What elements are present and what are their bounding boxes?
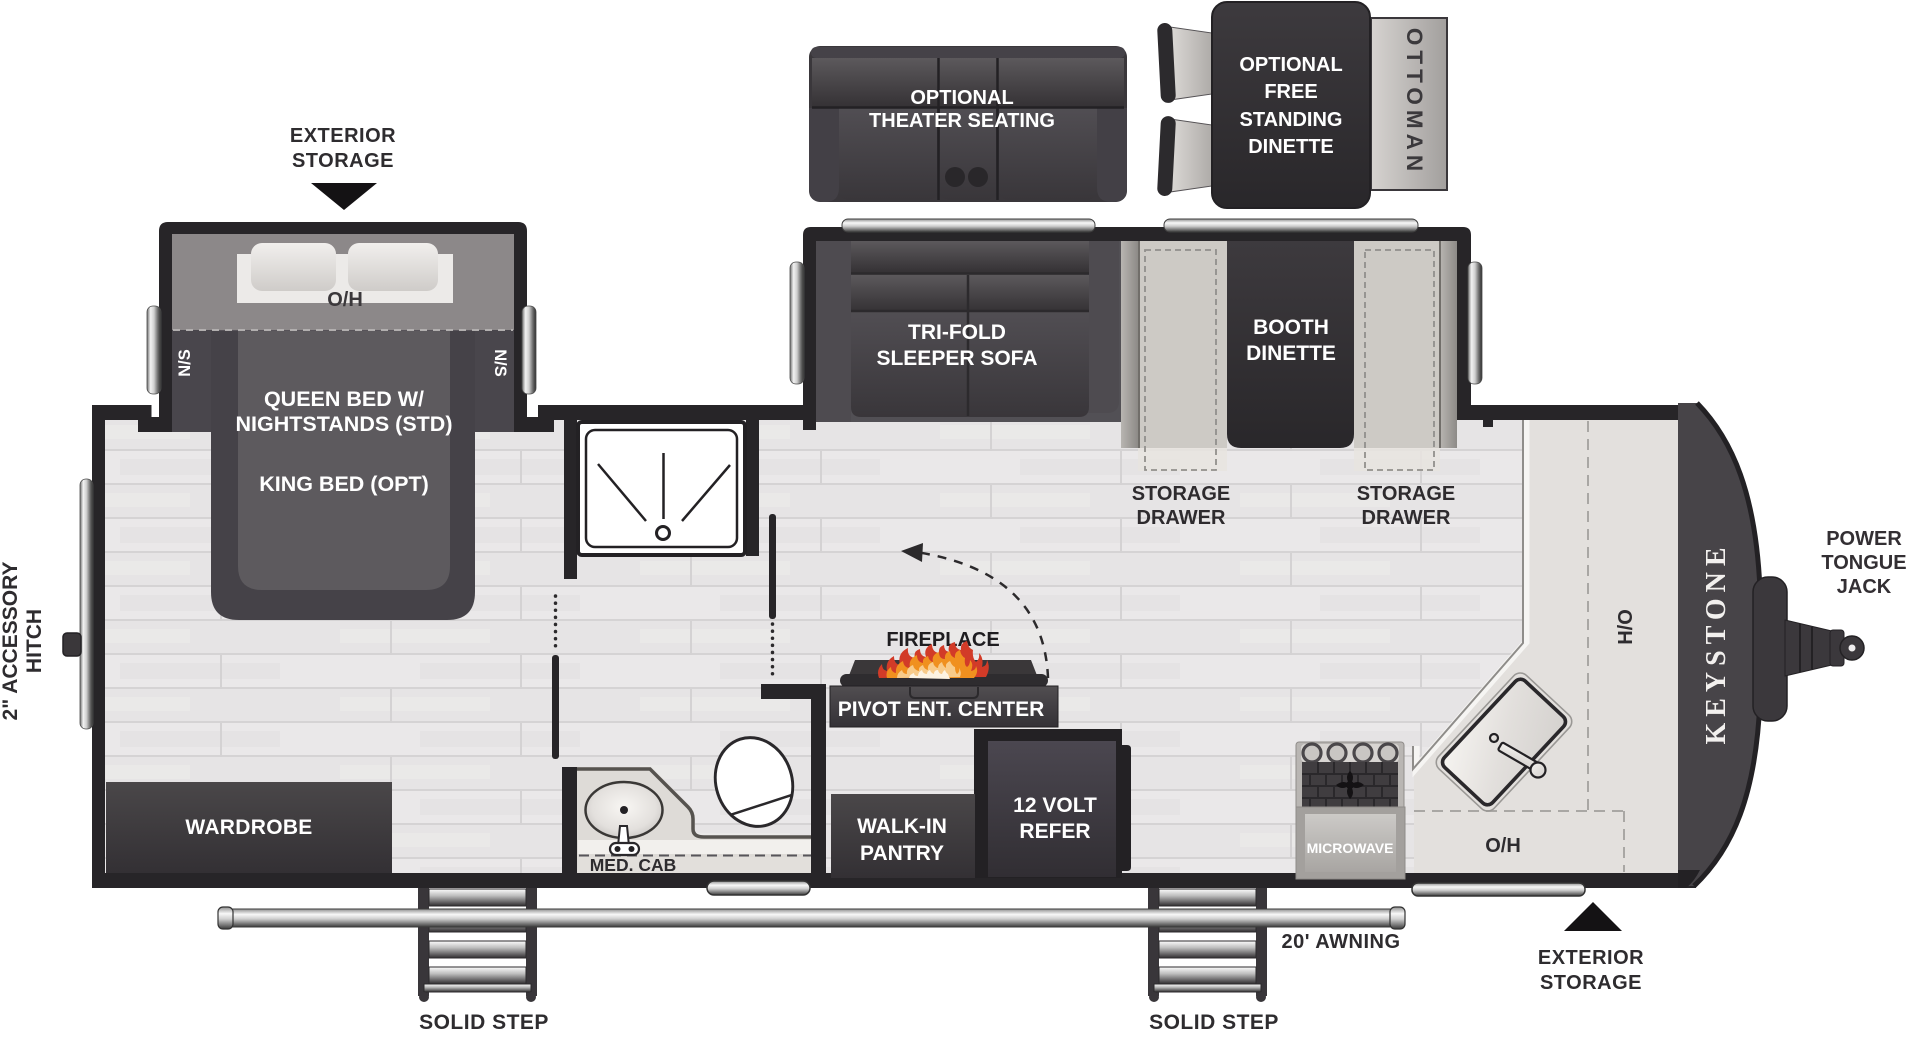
svg-text:JACK: JACK (1837, 576, 1892, 598)
svg-text:MED. CAB: MED. CAB (590, 855, 677, 875)
svg-text:WALK-IN: WALK-IN (857, 815, 947, 838)
svg-text:STORAGE: STORAGE (1132, 483, 1231, 505)
svg-text:OTTOMAN: OTTOMAN (1402, 28, 1427, 176)
svg-text:O/H: O/H (1485, 835, 1521, 857)
svg-text:PIVOT ENT. CENTER: PIVOT ENT. CENTER (838, 698, 1045, 721)
svg-text:2" ACCESSORY: 2" ACCESSORY (0, 562, 22, 721)
svg-text:TONGUE: TONGUE (1821, 552, 1906, 574)
svg-text:FREE: FREE (1264, 81, 1317, 103)
svg-text:O/H: O/H (327, 289, 363, 311)
svg-text:N/S: N/S (176, 349, 194, 377)
svg-text:OPTIONAL: OPTIONAL (1239, 54, 1342, 76)
svg-text:TRI-FOLD: TRI-FOLD (908, 321, 1006, 344)
svg-text:KEYSTONE: KEYSTONE (1701, 541, 1732, 744)
svg-text:STORAGE: STORAGE (292, 150, 394, 172)
svg-text:DINETTE: DINETTE (1246, 342, 1336, 365)
svg-text:12 VOLT: 12 VOLT (1013, 794, 1097, 817)
svg-text:20' AWNING: 20' AWNING (1281, 931, 1400, 953)
svg-text:SOLID STEP: SOLID STEP (1149, 1011, 1279, 1034)
svg-text:H/O: H/O (1615, 609, 1637, 645)
svg-text:QUEEN BED W/: QUEEN BED W/ (264, 387, 424, 411)
svg-text:N/S: N/S (491, 349, 509, 377)
svg-text:EXTERIOR: EXTERIOR (290, 125, 396, 147)
svg-text:STORAGE: STORAGE (1540, 972, 1642, 994)
svg-text:DRAWER: DRAWER (1362, 507, 1451, 529)
svg-text:PANTRY: PANTRY (860, 842, 944, 865)
svg-text:HITCH: HITCH (23, 609, 46, 673)
svg-text:DINETTE: DINETTE (1248, 136, 1334, 158)
svg-text:DRAWER: DRAWER (1137, 507, 1226, 529)
svg-text:POWER: POWER (1826, 528, 1902, 550)
svg-text:OPTIONAL: OPTIONAL (910, 87, 1013, 109)
svg-text:STORAGE: STORAGE (1357, 483, 1456, 505)
svg-text:MICROWAVE: MICROWAVE (1307, 840, 1394, 856)
svg-text:SLEEPER SOFA: SLEEPER SOFA (876, 347, 1037, 370)
svg-text:THEATER SEATING: THEATER SEATING (869, 110, 1055, 132)
svg-text:SOLID STEP: SOLID STEP (419, 1011, 549, 1034)
svg-text:STANDING: STANDING (1240, 109, 1343, 131)
svg-text:WARDROBE: WARDROBE (185, 816, 312, 839)
svg-text:KING BED (OPT): KING BED (OPT) (259, 472, 429, 496)
svg-text:EXTERIOR: EXTERIOR (1538, 947, 1644, 969)
svg-text:NIGHTSTANDS (STD): NIGHTSTANDS (STD) (236, 412, 453, 436)
svg-text:REFER: REFER (1019, 820, 1090, 843)
svg-text:BOOTH: BOOTH (1253, 316, 1329, 339)
